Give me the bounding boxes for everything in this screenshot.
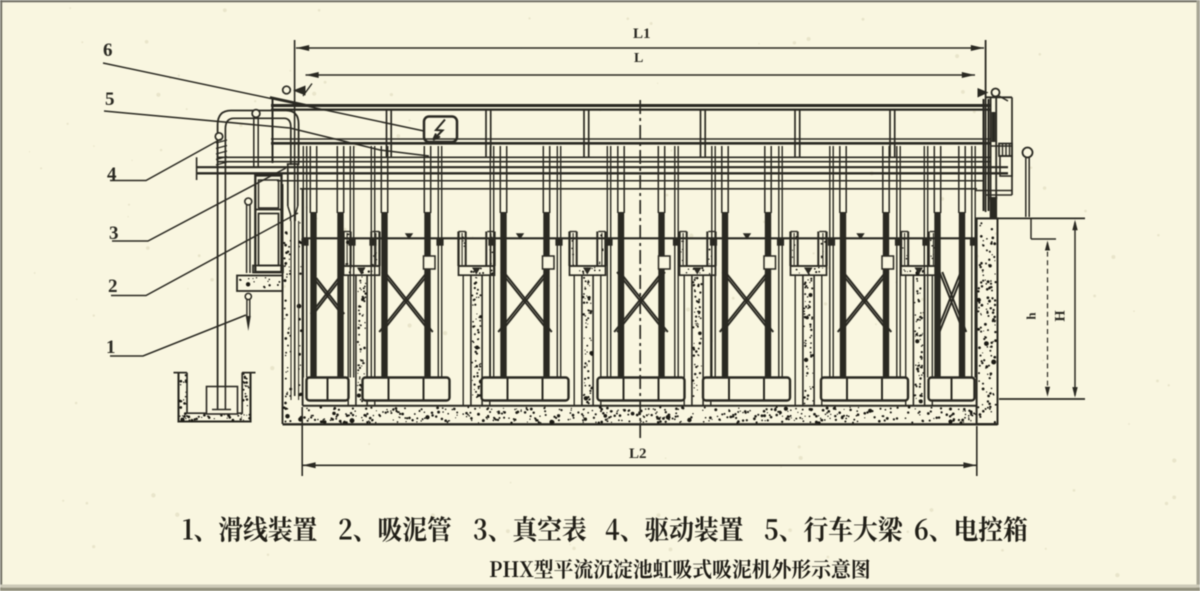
svg-text:6: 6 [103,40,113,61]
svg-text:L2: L2 [629,446,647,462]
svg-text:H: H [1053,310,1069,322]
svg-text:h: h [1024,312,1039,320]
svg-text:1: 1 [106,337,116,358]
svg-text:5: 5 [105,89,115,110]
svg-text:2: 2 [108,276,118,297]
svg-text:4: 4 [107,164,117,185]
svg-text:L: L [634,51,643,66]
svg-text:L1: L1 [633,26,651,42]
